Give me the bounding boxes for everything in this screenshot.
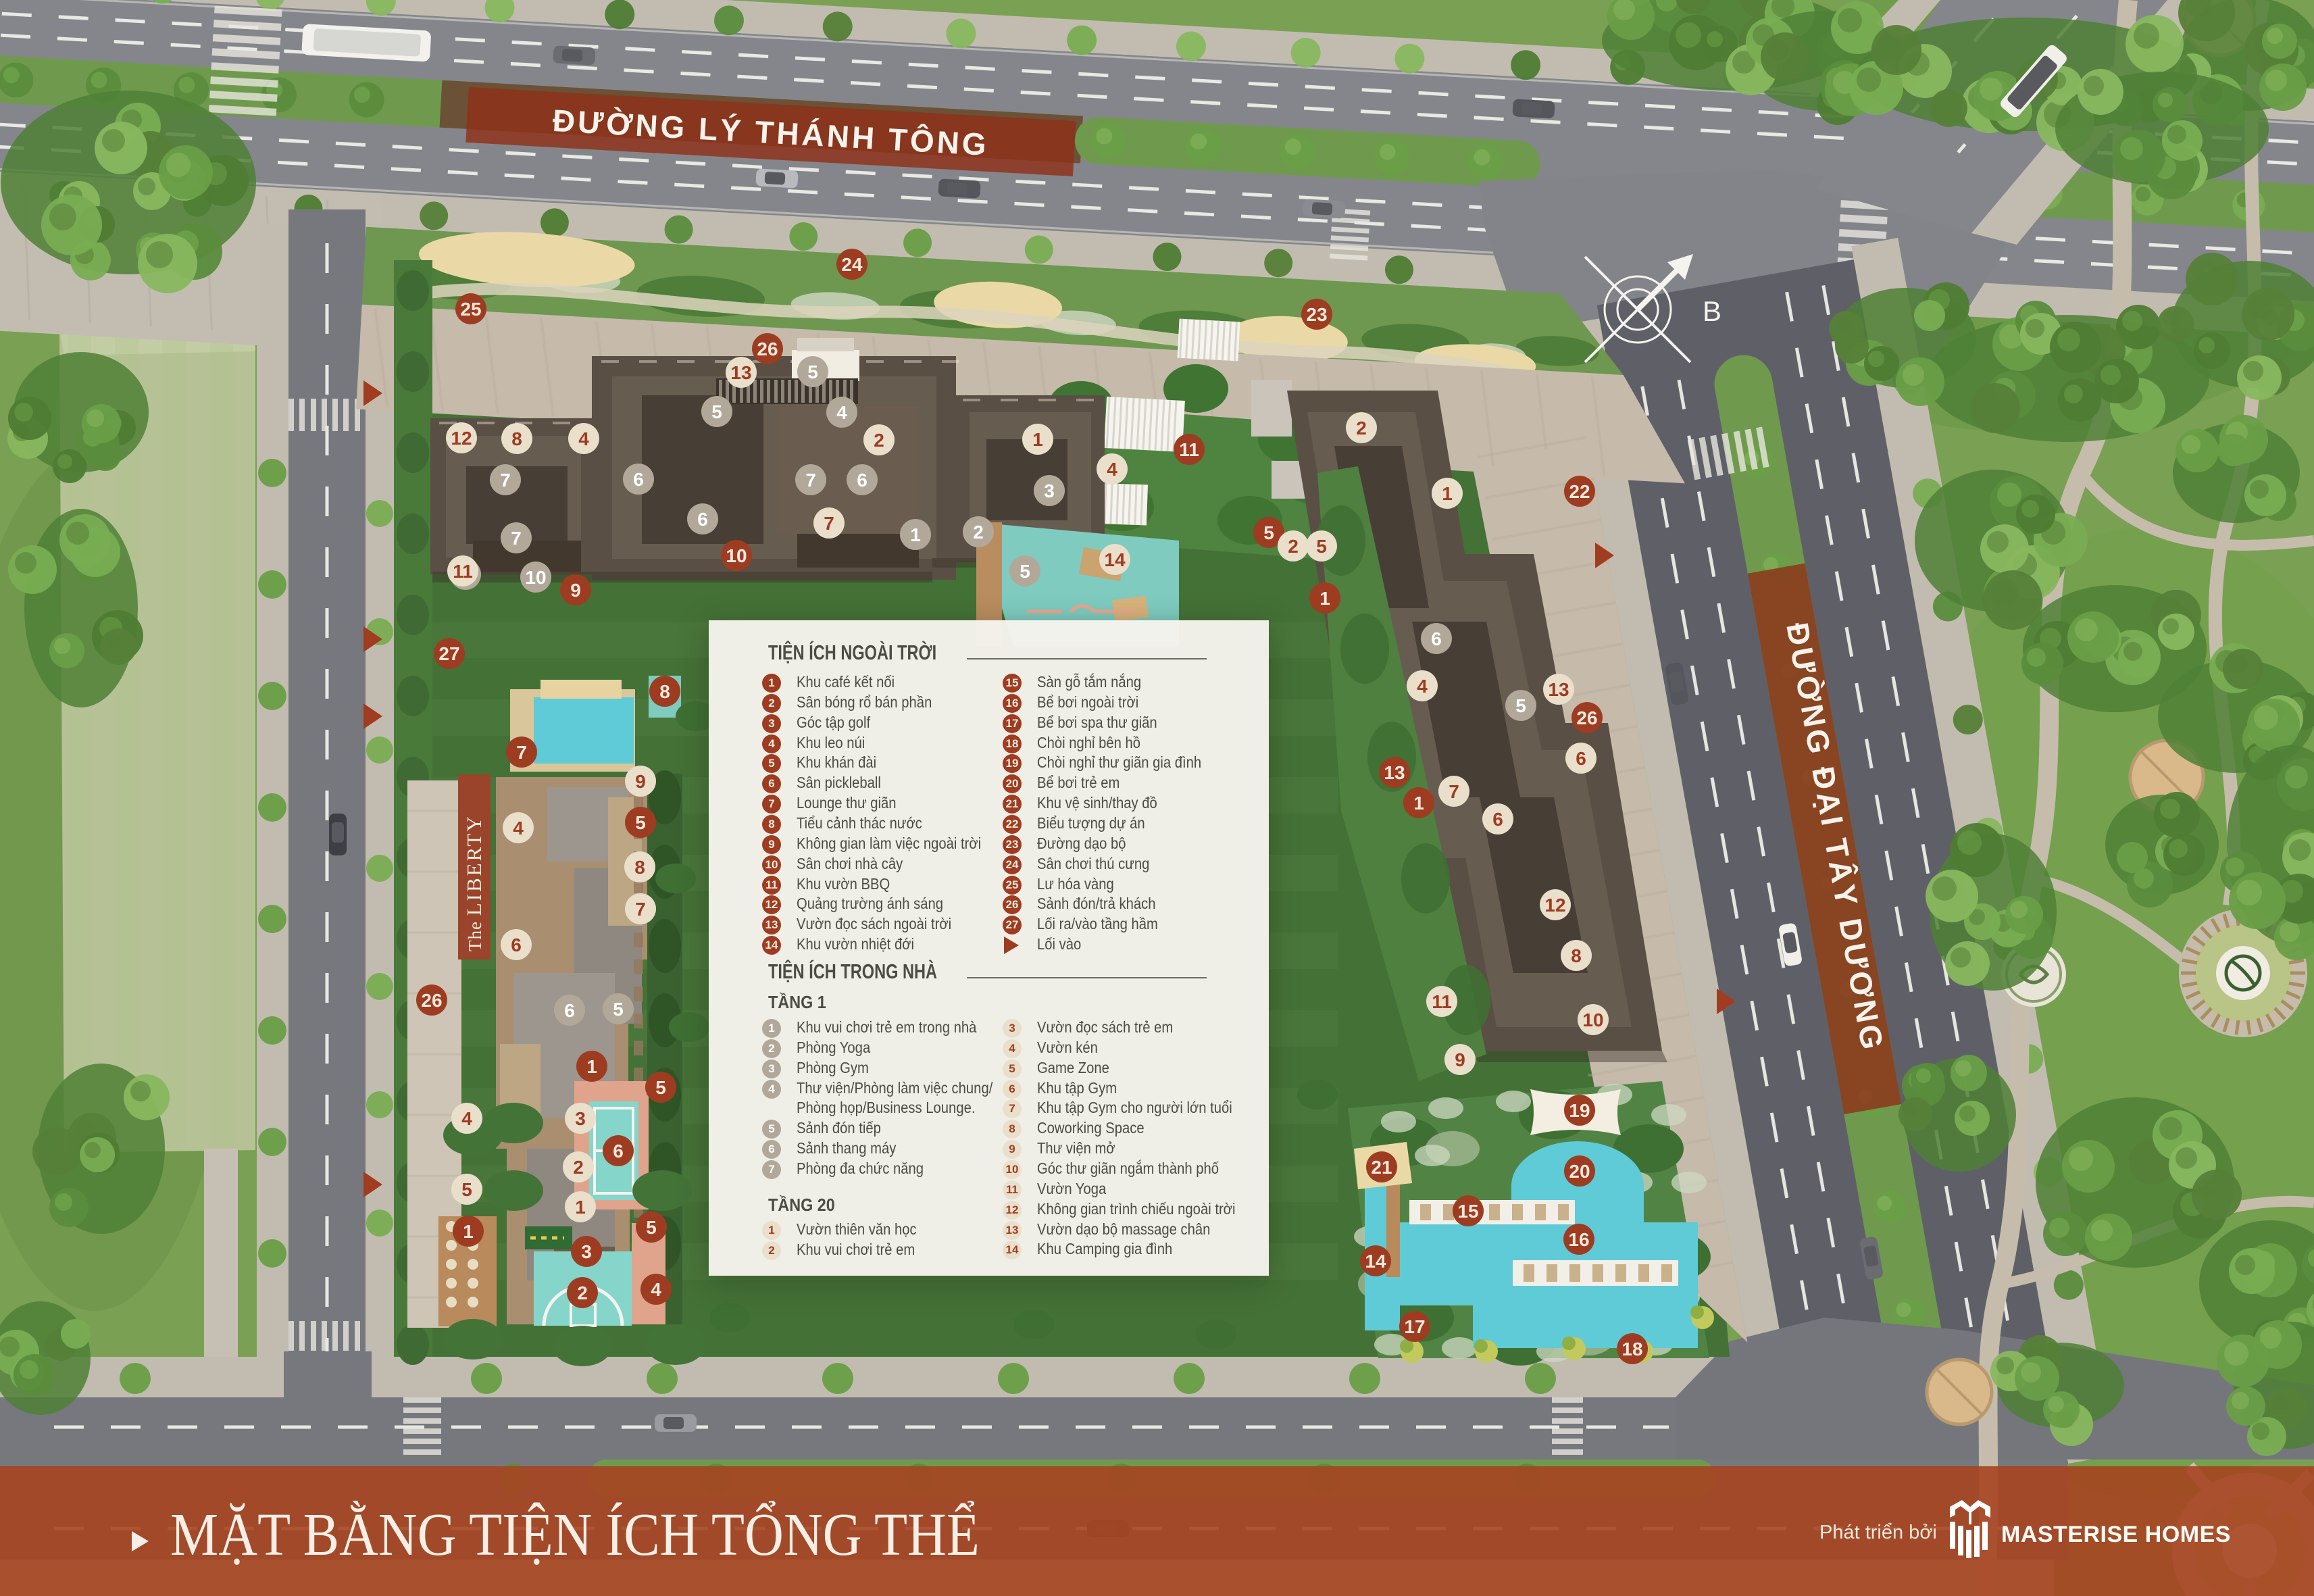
svg-text:21: 21: [1371, 1157, 1392, 1178]
svg-text:11: 11: [453, 561, 473, 582]
svg-text:2: 2: [1288, 536, 1299, 557]
svg-text:20: 20: [1569, 1161, 1590, 1182]
svg-text:1: 1: [1032, 429, 1043, 450]
svg-text:6: 6: [564, 1000, 575, 1021]
svg-text:3: 3: [581, 1241, 592, 1262]
svg-text:1: 1: [910, 524, 921, 545]
svg-text:1: 1: [586, 1056, 597, 1077]
svg-text:17: 17: [1404, 1316, 1425, 1337]
svg-text:13: 13: [1384, 762, 1405, 783]
svg-text:6: 6: [511, 934, 522, 955]
svg-text:18: 18: [1621, 1339, 1642, 1360]
svg-text:10: 10: [1582, 1009, 1603, 1030]
svg-text:7: 7: [500, 470, 511, 491]
svg-text:6: 6: [633, 469, 644, 490]
svg-text:14: 14: [1365, 1251, 1386, 1272]
svg-text:9: 9: [570, 580, 581, 601]
svg-text:19: 19: [1569, 1100, 1590, 1121]
svg-text:1: 1: [1413, 793, 1424, 814]
svg-text:8: 8: [634, 857, 645, 878]
svg-text:6: 6: [1492, 809, 1503, 830]
svg-text:5: 5: [635, 812, 646, 833]
svg-text:1: 1: [1442, 483, 1453, 504]
svg-text:25: 25: [460, 299, 481, 320]
svg-text:5: 5: [1316, 536, 1327, 557]
svg-text:6: 6: [857, 470, 867, 491]
svg-text:24: 24: [841, 254, 863, 275]
svg-text:9: 9: [635, 771, 646, 792]
svg-text:B: B: [1703, 295, 1721, 327]
svg-text:5: 5: [1263, 522, 1274, 543]
svg-text:4: 4: [651, 1279, 661, 1300]
svg-text:2: 2: [573, 1157, 584, 1178]
svg-text:The LIBERTY: The LIBERTY: [462, 814, 486, 951]
svg-text:11: 11: [1179, 439, 1199, 460]
svg-text:2: 2: [577, 1282, 588, 1303]
svg-text:2: 2: [973, 522, 984, 543]
svg-text:6: 6: [1576, 748, 1586, 769]
svg-text:4: 4: [836, 402, 847, 423]
svg-text:9: 9: [1455, 1049, 1465, 1070]
svg-text:13: 13: [730, 362, 751, 383]
svg-text:5: 5: [646, 1217, 657, 1238]
svg-text:4: 4: [1417, 676, 1428, 697]
svg-text:5: 5: [1020, 561, 1030, 582]
svg-text:4: 4: [1107, 459, 1117, 480]
svg-text:7: 7: [516, 742, 527, 763]
svg-text:5: 5: [461, 1179, 472, 1200]
svg-text:8: 8: [511, 428, 522, 449]
svg-text:11: 11: [1432, 991, 1452, 1012]
svg-text:4: 4: [513, 818, 524, 839]
svg-text:8: 8: [659, 681, 670, 702]
svg-text:5: 5: [613, 999, 624, 1020]
svg-text:7: 7: [805, 470, 816, 491]
svg-text:26: 26: [421, 990, 442, 1011]
svg-text:2: 2: [874, 430, 884, 451]
svg-text:6: 6: [1431, 628, 1442, 649]
svg-text:3: 3: [1044, 480, 1055, 501]
svg-text:27: 27: [438, 643, 459, 664]
svg-text:5: 5: [1515, 695, 1526, 716]
svg-text:22: 22: [1569, 481, 1590, 502]
svg-text:1: 1: [463, 1221, 474, 1242]
svg-text:14: 14: [1104, 549, 1126, 570]
svg-text:16: 16: [1568, 1229, 1589, 1250]
svg-text:7: 7: [1449, 781, 1459, 802]
svg-text:15: 15: [1457, 1201, 1478, 1222]
svg-text:4: 4: [578, 428, 589, 449]
svg-text:5: 5: [655, 1077, 666, 1098]
svg-text:26: 26: [1576, 707, 1597, 728]
svg-text:1: 1: [575, 1197, 586, 1218]
svg-text:10: 10: [726, 545, 747, 566]
svg-text:5: 5: [807, 361, 818, 382]
svg-text:7: 7: [824, 513, 834, 534]
svg-text:12: 12: [1544, 895, 1565, 916]
svg-text:12: 12: [451, 428, 472, 449]
svg-text:13: 13: [1548, 679, 1569, 700]
svg-text:1: 1: [1319, 588, 1330, 609]
svg-text:23: 23: [1306, 304, 1327, 325]
svg-text:2: 2: [1356, 418, 1367, 439]
svg-text:7: 7: [511, 528, 522, 549]
svg-text:6: 6: [697, 509, 708, 530]
svg-text:7: 7: [635, 899, 646, 920]
svg-text:8: 8: [1571, 945, 1582, 966]
svg-text:10: 10: [525, 567, 546, 588]
svg-text:4: 4: [461, 1108, 472, 1129]
svg-text:5: 5: [711, 401, 722, 422]
svg-text:3: 3: [575, 1108, 586, 1129]
svg-text:6: 6: [613, 1141, 624, 1162]
svg-text:26: 26: [757, 339, 778, 359]
